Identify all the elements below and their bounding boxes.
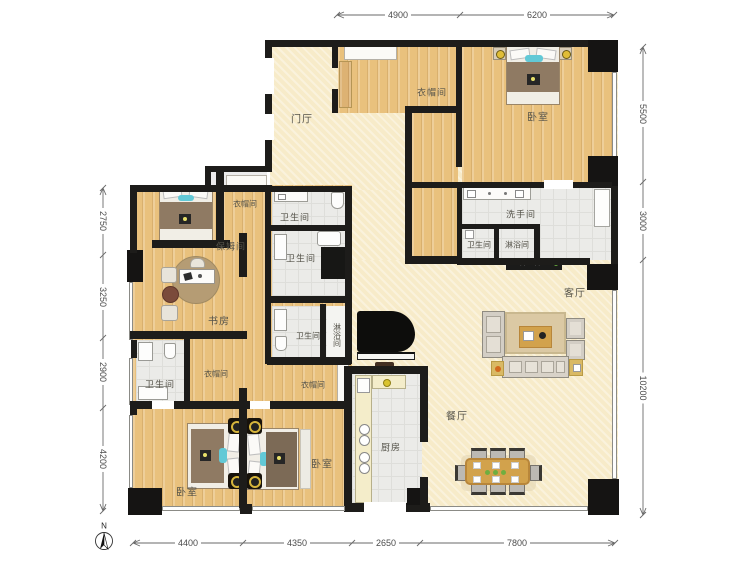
- room-label-entry: 门厅: [291, 111, 313, 126]
- armchair: [161, 267, 177, 283]
- dim-right-1: 5500: [638, 101, 648, 127]
- dim-left-1: 2750: [98, 208, 108, 234]
- wall: [265, 40, 618, 47]
- window: [252, 506, 345, 511]
- sink-icon: [359, 424, 370, 435]
- room-label-cloak-mid: 衣帽间: [301, 380, 325, 391]
- dim-right-3: 10200: [638, 372, 648, 403]
- wall: [270, 225, 349, 231]
- decor-dot: [183, 217, 187, 221]
- dish-green: [485, 470, 490, 475]
- wall-column: [587, 264, 618, 290]
- washer-icon: [274, 309, 287, 331]
- dim-bottom-4: 7800: [504, 538, 530, 548]
- sink-icon: [359, 435, 370, 446]
- side-table: [569, 359, 583, 376]
- bed-mat: [300, 429, 311, 489]
- cushion: [556, 361, 565, 373]
- room-label-wc-wash: 卫生间: [467, 240, 491, 251]
- bed-runner: [527, 74, 540, 85]
- plate: [492, 476, 500, 483]
- decor-dot: [531, 77, 535, 81]
- loveseat: [482, 311, 505, 358]
- wall: [267, 296, 350, 303]
- shower-dark: [321, 247, 348, 279]
- plate: [511, 476, 519, 483]
- vanity-counter: [463, 187, 531, 200]
- desk: [179, 269, 215, 284]
- toilet-icon: [275, 336, 287, 351]
- wall: [267, 357, 351, 365]
- plate: [511, 462, 519, 469]
- throw: [219, 448, 227, 463]
- piano-keys: [357, 352, 415, 360]
- door-opening: [544, 180, 573, 189]
- dim-left-2: 3250: [98, 284, 108, 310]
- dish-green: [501, 470, 506, 475]
- laptop-icon: [183, 272, 193, 281]
- decor-dot: [203, 453, 207, 457]
- room-label-bath3: 卫生间: [296, 331, 320, 342]
- sink-icon: [515, 190, 524, 198]
- room-label-shower-mid: 淋浴间: [332, 323, 343, 347]
- wall: [344, 366, 428, 374]
- faucet-dot: [488, 192, 491, 195]
- wall: [216, 170, 224, 242]
- cushion: [570, 322, 581, 335]
- grand-piano: [357, 311, 415, 360]
- bed-nanny: [159, 186, 213, 242]
- door-opening: [152, 401, 174, 409]
- wardrobe: [339, 61, 352, 108]
- lamp-icon: [562, 50, 571, 59]
- wall-column: [128, 488, 162, 515]
- cushion: [541, 361, 554, 373]
- dim-left-3: 2900: [98, 359, 108, 385]
- side-stool: [162, 286, 179, 303]
- wall-column: [588, 40, 618, 72]
- decor-dot: [277, 456, 281, 460]
- nightstand: [559, 47, 572, 60]
- sink-icon: [467, 190, 476, 198]
- wall: [494, 226, 499, 262]
- room-label-bedroom-s: 卧室: [311, 456, 333, 471]
- room-label-kitchen: 厨房: [381, 441, 401, 454]
- wall: [405, 256, 460, 264]
- bed-master: [506, 45, 560, 105]
- fixture: [465, 230, 474, 239]
- wall: [611, 186, 618, 265]
- cushion: [486, 316, 501, 333]
- wall: [184, 338, 190, 404]
- toilet-icon: [331, 192, 344, 209]
- decor-dot: [539, 332, 546, 339]
- speaker-ring: [249, 476, 261, 488]
- armchair: [566, 318, 585, 339]
- room-label-cloak-left: 衣帽间: [204, 369, 228, 380]
- wall: [344, 374, 352, 505]
- fridge-icon: [357, 378, 370, 393]
- speaker-stool: [246, 473, 262, 489]
- dim-right-2: 3000: [638, 208, 648, 234]
- window: [430, 506, 588, 511]
- wall: [456, 43, 462, 167]
- wall: [131, 340, 137, 358]
- dim-top-1: 4900: [385, 10, 411, 20]
- window: [612, 72, 617, 157]
- room-label-bedroom-sw: 卧室: [176, 484, 198, 499]
- window: [162, 506, 240, 511]
- faucet-dot: [504, 192, 507, 195]
- dish-green: [493, 470, 498, 475]
- wall: [239, 388, 247, 508]
- bathtub-icon: [317, 231, 341, 246]
- room-label-cloak-top: 衣帽间: [417, 86, 447, 99]
- door-opening: [263, 114, 274, 140]
- wall: [265, 186, 271, 364]
- throw: [178, 195, 194, 201]
- wall: [130, 185, 137, 253]
- door-opening: [364, 502, 406, 513]
- bed-runner: [179, 214, 191, 224]
- pillow: [247, 433, 261, 455]
- wall-column: [588, 479, 619, 515]
- wall: [534, 226, 540, 262]
- washer-icon: [138, 342, 153, 361]
- sofa: [502, 356, 569, 378]
- wall: [267, 186, 352, 192]
- wall: [332, 89, 338, 113]
- armchair: [161, 305, 178, 321]
- wall: [320, 304, 326, 362]
- compass-north-label: N: [98, 522, 110, 531]
- wall: [462, 224, 540, 229]
- room-label-bath2: 卫生间: [286, 252, 316, 265]
- cushion: [486, 336, 501, 353]
- throw: [525, 55, 543, 62]
- speaker-ring: [249, 421, 261, 433]
- room-label-cloak-small: 衣帽间: [233, 199, 257, 210]
- cushion: [525, 361, 538, 373]
- plate: [492, 462, 500, 469]
- room-label-dining: 餐厅: [446, 408, 468, 423]
- burner-icon: [359, 463, 370, 474]
- wall-column: [127, 250, 143, 282]
- dim-bottom-3: 2650: [373, 538, 399, 548]
- coffee-table: [519, 326, 552, 348]
- kitchen-counter-top: [372, 375, 406, 389]
- bed-runner: [274, 453, 285, 464]
- speaker-stool: [246, 418, 262, 434]
- dining-table: [465, 458, 530, 485]
- wall: [412, 182, 612, 188]
- floor-plan-canvas: ✕✕: [0, 0, 750, 562]
- door-opening: [263, 58, 274, 94]
- wall: [332, 43, 338, 68]
- side-table: [491, 361, 504, 376]
- window: [129, 415, 133, 488]
- vanity-counter: [274, 191, 308, 202]
- piano-body: [357, 311, 415, 352]
- wall: [345, 186, 352, 364]
- room-label-wc4: 卫生间: [145, 378, 175, 391]
- cup-icon: [573, 364, 581, 372]
- desk-chair: [190, 258, 205, 268]
- dim-left-4: 4200: [98, 446, 108, 472]
- wall: [420, 477, 428, 505]
- lemon-icon: [383, 379, 391, 387]
- toilet-icon: [164, 343, 176, 359]
- plate: [473, 476, 481, 483]
- tray: [523, 331, 534, 341]
- cabinet: [594, 189, 610, 227]
- bowl-icon: [495, 366, 501, 372]
- wall: [405, 110, 412, 260]
- dim-top-2: 6200: [524, 10, 550, 20]
- cushion: [509, 361, 522, 373]
- room-label-nanny: 保姆间: [216, 240, 246, 253]
- wall: [130, 185, 272, 192]
- kitchen-counter: [355, 375, 372, 503]
- wall: [420, 374, 428, 442]
- dining-chair: [530, 465, 542, 481]
- bed-runner: [200, 450, 211, 461]
- plate: [473, 462, 481, 469]
- sink-icon: [278, 194, 286, 200]
- window: [129, 358, 133, 405]
- room-label-shower-wash: 淋浴间: [505, 240, 529, 251]
- cushion: [570, 344, 581, 356]
- dim-bottom-2: 4350: [284, 538, 310, 548]
- wall: [462, 258, 590, 265]
- room-label-washroom: 洗手间: [506, 208, 536, 221]
- dim-bottom-1: 4400: [175, 538, 201, 548]
- lamp-icon: [496, 50, 505, 59]
- room-label-study: 书房: [208, 313, 230, 328]
- closet: [344, 46, 397, 60]
- room-label-living: 客厅: [564, 285, 586, 300]
- desk-item: [198, 274, 202, 278]
- room-label-bath1: 卫生间: [280, 211, 310, 224]
- burner-icon: [359, 452, 370, 463]
- wall: [405, 106, 460, 113]
- window: [612, 290, 617, 479]
- door-opening: [250, 401, 270, 409]
- nightstand: [493, 47, 506, 60]
- room-label-master: 卧室: [527, 109, 549, 124]
